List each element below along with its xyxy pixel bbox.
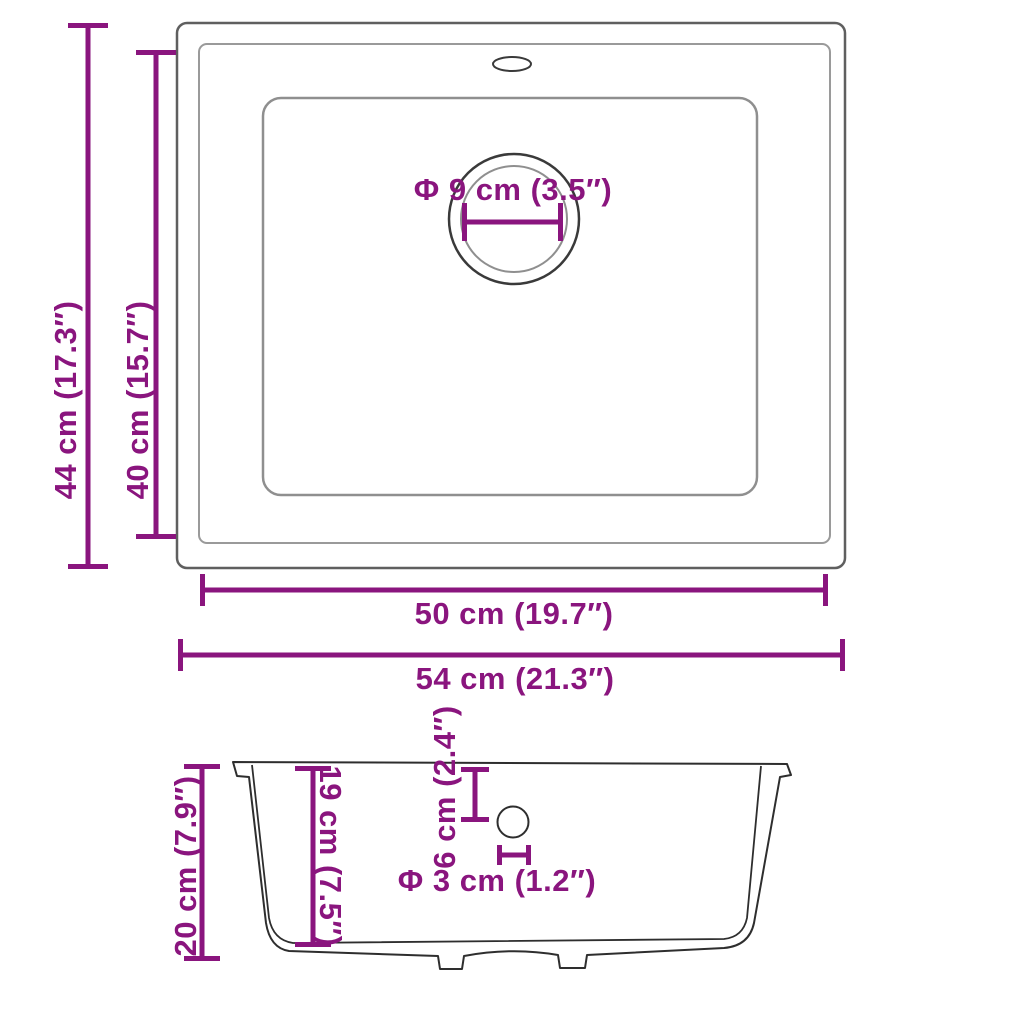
dim-drain-diameter-label: Φ 9 cm (3.5″) bbox=[414, 172, 612, 207]
sink-outer-rect bbox=[177, 23, 845, 568]
dim-side-height-label: 20 cm (7.9″) bbox=[168, 775, 203, 956]
dim-inner-height-label: 40 cm (15.7″) bbox=[120, 301, 155, 500]
side-view: 20 cm (7.9″) 19 cm (7.5″) 6 cm (2.4″) Φ … bbox=[168, 705, 791, 969]
dim-drain-offset-label: 6 cm (2.4″) bbox=[427, 705, 462, 868]
faucet-hole-ellipse bbox=[493, 57, 531, 71]
diagram-canvas: 44 cm (17.3″) 40 cm (15.7″) Φ 9 cm (3.5″… bbox=[0, 0, 1024, 1024]
dim-outer-width-label: 54 cm (21.3″) bbox=[416, 661, 615, 696]
sink-bowl-rect bbox=[263, 98, 757, 495]
sink-dimension-diagram: 44 cm (17.3″) 40 cm (15.7″) Φ 9 cm (3.5″… bbox=[0, 0, 1024, 1024]
dim-bowl-depth-label: 19 cm (7.5″) bbox=[313, 765, 348, 946]
dim-drain-diameter bbox=[462, 203, 563, 241]
dim-inner-width-label: 50 cm (19.7″) bbox=[415, 596, 614, 631]
dim-side-drain-hole-label: Φ 3 cm (1.2″) bbox=[398, 863, 596, 898]
top-view: 44 cm (17.3″) 40 cm (15.7″) Φ 9 cm (3.5″… bbox=[48, 23, 845, 696]
dim-outer-height-label: 44 cm (17.3″) bbox=[48, 301, 83, 500]
dim-drain-offset bbox=[461, 767, 489, 822]
side-drain-hole-circle bbox=[498, 807, 529, 838]
sink-inner-rim-rect bbox=[199, 44, 830, 543]
dim-side-drain-hole bbox=[497, 845, 531, 865]
